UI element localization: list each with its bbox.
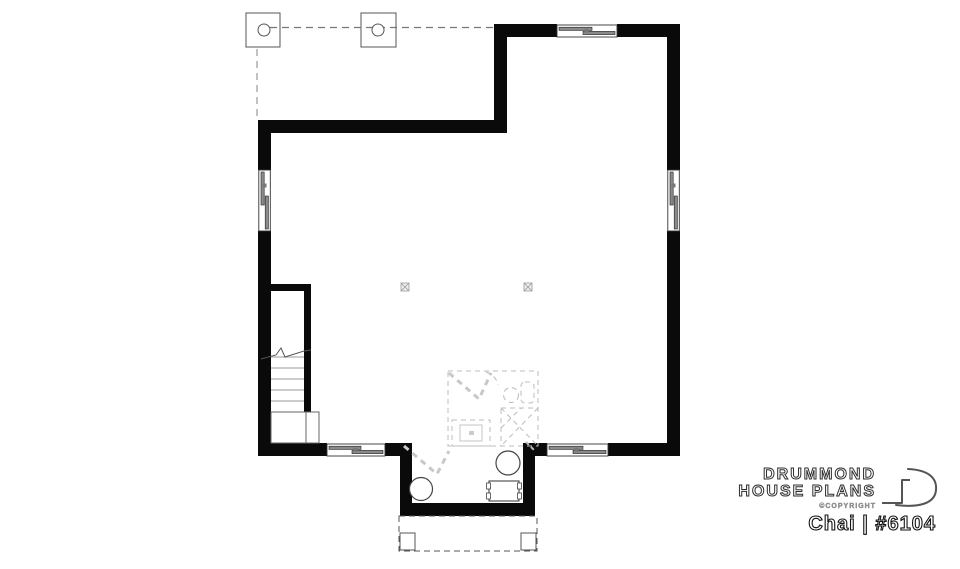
stair-wall (304, 284, 311, 412)
window-lock (354, 448, 358, 452)
water-heater-icon (496, 451, 520, 475)
window-sash (261, 172, 264, 205)
window-sash (674, 196, 677, 229)
understair-closet (271, 412, 319, 443)
window-sash (670, 172, 673, 205)
wall-segment (258, 120, 507, 133)
column-marker-icon (401, 283, 409, 291)
stair-arrow-above (449, 373, 491, 399)
upper-porch (246, 13, 494, 120)
window-lock (672, 184, 676, 188)
fireplace-above-icon (452, 420, 490, 446)
window-lock (575, 448, 579, 452)
shower-above-icon (501, 408, 538, 446)
floor-plan-drawing (0, 0, 960, 569)
wall-segment (494, 24, 557, 37)
porch-post (400, 533, 415, 550)
column-marker-icon (524, 283, 532, 291)
window-left (259, 170, 271, 231)
furnace-unit-icon (487, 481, 522, 501)
wall-segment (608, 443, 680, 456)
wall-segment (258, 231, 271, 456)
porch-outline-dashed (399, 516, 537, 551)
window-bottom-right (547, 444, 608, 456)
wall-segment (258, 120, 271, 170)
wall-segment (258, 443, 327, 456)
projected-fixtures (448, 371, 538, 446)
window-lock (585, 29, 589, 33)
floor-plan-page: DRUMMOND HOUSE PLANS ©COPYRIGHT Chai | #… (0, 0, 960, 569)
post-circle-icon (258, 24, 270, 36)
wall-segment (400, 503, 535, 516)
entry-porch (399, 516, 537, 551)
stair-treads (271, 357, 304, 401)
entry-vestibule (404, 442, 534, 501)
sink-above-icon (521, 382, 534, 403)
column-markers (401, 283, 532, 291)
wall-segment (667, 24, 680, 170)
window-lock (263, 184, 267, 188)
wall-segment (494, 24, 507, 133)
porch-post (521, 533, 536, 550)
post-circle-icon (372, 24, 384, 36)
window-top (557, 25, 617, 37)
window-bottom-left (327, 444, 385, 456)
wall-segment (667, 231, 680, 456)
toilet-above-icon (504, 388, 519, 403)
exterior-walls (258, 24, 680, 516)
water-heater-icon (410, 478, 433, 501)
window-sash (265, 196, 268, 229)
window-right (668, 170, 680, 231)
